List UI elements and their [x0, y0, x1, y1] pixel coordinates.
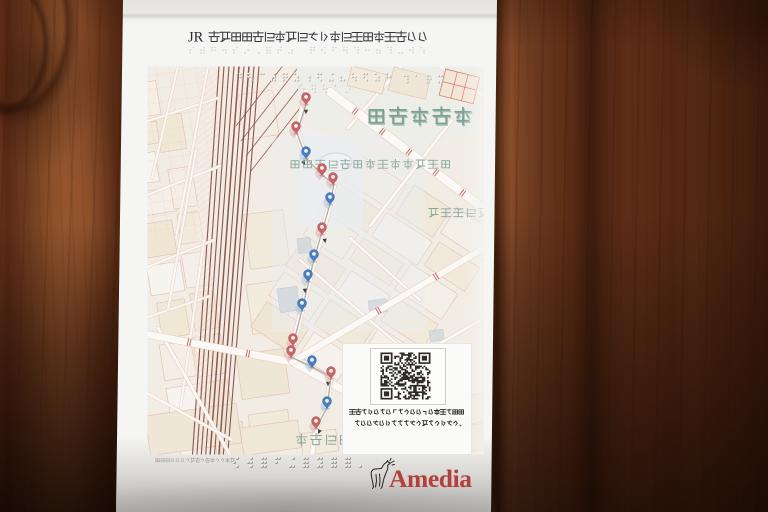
svg-text:Amedia: Amedia [389, 464, 472, 493]
svg-text:JR: JR [188, 30, 204, 46]
